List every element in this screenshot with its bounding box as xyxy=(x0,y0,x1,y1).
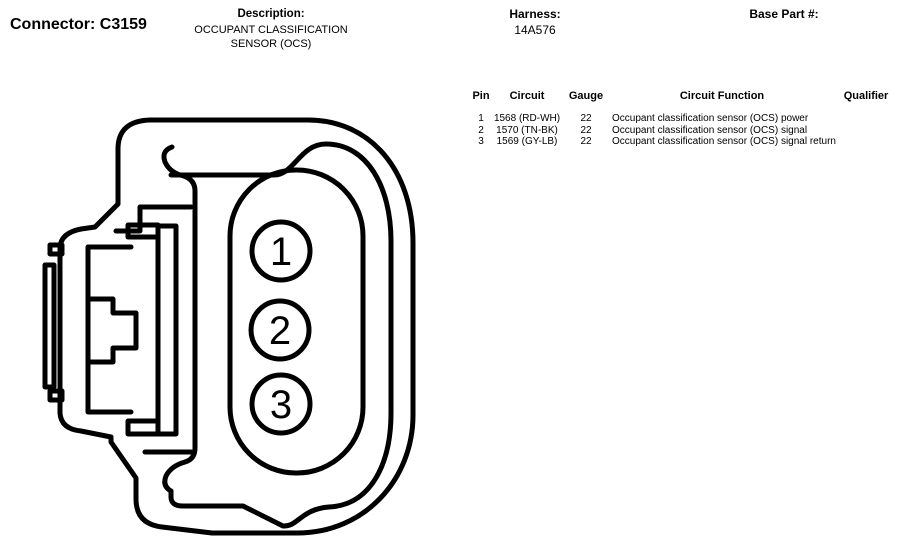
circuit-cell: 1570 (TN-BK) xyxy=(487,125,567,137)
connector-drawing-svg: 1 2 3 xyxy=(0,100,450,548)
connector-face-diagram: 1 2 3 xyxy=(0,100,450,548)
description-label: Description: xyxy=(171,8,371,20)
description-value: OCCUPANT CLASSIFICATION SENSOR (OCS) xyxy=(146,23,396,51)
connector-outer-outline xyxy=(60,120,413,533)
harness-value: 14A576 xyxy=(485,23,585,37)
circuit-function-cell: Occupant classification sensor (OCS) pow… xyxy=(612,113,862,125)
connector-title: Connector: C3159 xyxy=(10,16,147,34)
gauge-cell: 22 xyxy=(556,113,616,125)
circuit-function-cell: Occupant classification sensor (OCS) sig… xyxy=(612,125,862,137)
latch-upper-tab xyxy=(50,245,62,254)
pin-number-label: 1 xyxy=(270,230,292,274)
harness-label: Harness: xyxy=(485,7,585,21)
pin-number-label: 2 xyxy=(269,309,291,353)
latch-side-bar xyxy=(45,265,54,387)
connector-pinout-page: { "header": { "connector": "Connector: C… xyxy=(0,0,904,548)
circuit-cell: 1569 (GY-LB) xyxy=(487,136,567,148)
table-header-circuit: Circuit xyxy=(487,90,567,102)
circuit-function-cell: Occupant classification sensor (OCS) sig… xyxy=(612,136,862,148)
latch-lower-tab xyxy=(50,391,62,400)
table-header-gauge: Gauge xyxy=(556,90,616,102)
pin-number-label: 3 xyxy=(270,383,292,427)
gauge-cell: 22 xyxy=(556,136,616,148)
table-header-qualifier: Qualifier xyxy=(816,90,904,102)
base-part-label: Base Part #: xyxy=(724,7,844,21)
gauge-cell: 22 xyxy=(556,125,616,137)
circuit-cell: 1568 (RD-WH) xyxy=(487,113,567,125)
description-line-1: OCCUPANT CLASSIFICATION xyxy=(146,23,396,37)
table-header-circuit-function: Circuit Function xyxy=(642,90,802,102)
description-line-2: SENSOR (OCS) xyxy=(146,37,396,51)
